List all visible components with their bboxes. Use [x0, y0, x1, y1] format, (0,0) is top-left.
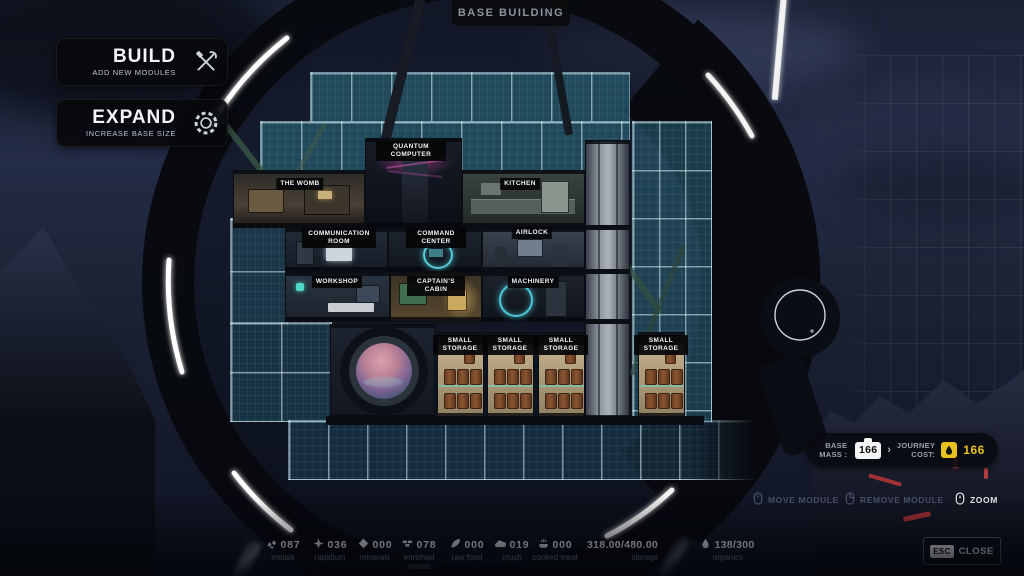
module-label: CAPTAIN'S CABIN	[407, 276, 465, 296]
storage-value: 318.00/480.00	[587, 539, 658, 551]
resource-label: enriched metals	[392, 553, 446, 571]
resource-label: cooked meal	[528, 553, 582, 562]
module-label: THE WOMB	[276, 178, 323, 190]
resource-value: 000	[465, 539, 485, 551]
storage-label: storage	[578, 553, 658, 562]
module-label: SMALL STORAGE	[483, 335, 537, 355]
hint-label: ZOOM	[970, 495, 998, 505]
module-label: QUANTUM COMPUTER	[376, 141, 446, 161]
organics-drop-icon	[701, 536, 710, 554]
expand-button-sublabel: INCREASE BASE SIZE	[57, 129, 176, 138]
organics-readout: 138/300 organics	[700, 539, 756, 562]
mouse-right-click-icon	[845, 492, 855, 507]
esc-key-badge: ESC	[930, 545, 953, 558]
empty-grid-area[interactable]	[288, 420, 757, 480]
resource-value: 000	[553, 539, 573, 551]
organics-value: 138/300	[714, 539, 754, 551]
base-building-screen: QUANTUM COMPUTER THE WOMB KITCHEN COMMUN…	[0, 0, 1024, 576]
mush-icon	[495, 536, 506, 554]
mass-journey-panel: BASE MASS : 166 › JOURNEY COST: 166	[806, 433, 998, 467]
close-label: CLOSE	[959, 546, 994, 557]
module-porthole	[330, 324, 435, 420]
build-button-label: BUILD	[57, 47, 176, 66]
cooked-meal-icon	[538, 536, 549, 554]
expand-button-label: EXPAND	[57, 108, 176, 127]
screen-title-box: BASE BUILDING	[452, 0, 570, 26]
base-platform	[326, 416, 704, 425]
hint-zoom: ZOOM	[955, 492, 998, 507]
storage-readout: 318.00/480.00 storage	[578, 539, 658, 562]
metals-icon	[266, 536, 277, 554]
module-label: COMMUNICATION ROOM	[302, 228, 376, 248]
module-label: MACHINERY	[508, 276, 559, 288]
hint-label: MOVE MODULE	[768, 495, 839, 505]
resource-value: 000	[373, 539, 393, 551]
module-label: COMMAND CENTER	[406, 228, 466, 248]
resource-enriched-metals: 078 enriched metals	[392, 539, 446, 571]
resource-value: 019	[510, 539, 530, 551]
mouse-drag-icon	[753, 492, 763, 507]
mouse-scroll-icon	[955, 492, 965, 507]
expand-button[interactable]: EXPAND INCREASE BASE SIZE	[56, 99, 228, 147]
module-label: SMALL STORAGE	[534, 335, 588, 355]
empty-grid-area[interactable]	[230, 322, 332, 422]
resource-value: 036	[328, 539, 348, 551]
expand-gear-icon	[185, 109, 227, 137]
journey-cost-value: 166	[963, 443, 985, 457]
organics-label: organics	[700, 553, 756, 562]
empty-grid-area[interactable]	[310, 72, 630, 123]
journey-cost-label: JOURNEY COST:	[897, 441, 935, 459]
build-button[interactable]: BUILD ADD NEW MODULES	[56, 38, 228, 86]
module-elevator-shaft[interactable]	[585, 140, 630, 420]
enriched-metals-icon	[402, 536, 413, 554]
base-mass-label: BASE MASS :	[819, 441, 847, 459]
rapidium-icon	[313, 536, 324, 554]
module-label: SMALL STORAGE	[634, 335, 688, 355]
hint-remove-module: REMOVE MODULE	[845, 492, 944, 507]
raw-food-icon	[450, 536, 461, 554]
resource-label: metals	[256, 553, 310, 562]
module-label: KITCHEN	[500, 178, 540, 190]
module-label: SMALL STORAGE	[433, 335, 487, 355]
empty-grid-area[interactable]	[230, 218, 288, 324]
close-button[interactable]: ESC CLOSE	[923, 537, 1001, 565]
build-button-sublabel: ADD NEW MODULES	[57, 68, 176, 77]
hint-move-module: MOVE MODULE	[753, 492, 839, 507]
base-mass-value: 166	[859, 444, 877, 456]
resource-value: 087	[281, 539, 301, 551]
module-label: WORKSHOP	[312, 276, 362, 288]
minerals-icon	[358, 536, 369, 554]
resource-value: 078	[417, 539, 437, 551]
base-mass-badge: 166	[855, 442, 881, 459]
hint-label: REMOVE MODULE	[860, 495, 944, 505]
hammer-wrench-icon	[185, 49, 227, 75]
resource-cooked-meal: 000 cooked meal	[528, 539, 582, 562]
fuel-icon	[941, 442, 957, 458]
chevron-right-icon: ›	[887, 444, 891, 456]
resource-metals: 087 metals	[256, 539, 310, 562]
module-label: AIRLOCK	[512, 227, 552, 239]
screen-title: BASE BUILDING	[458, 7, 564, 19]
